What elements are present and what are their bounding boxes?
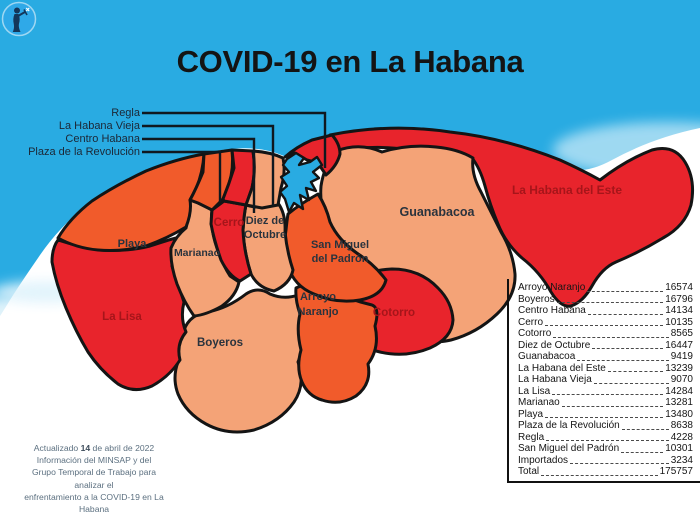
credit-line1-suffix: de abril de 2022 xyxy=(90,443,154,453)
stats-row: Playa13480 xyxy=(518,409,693,421)
stats-value: 13480 xyxy=(665,409,693,421)
callout-label-plaza: Plaza de la Revolución xyxy=(24,146,140,158)
stats-leader xyxy=(577,360,668,361)
stats-leader xyxy=(570,463,669,464)
stats-name: Cerro xyxy=(518,317,543,329)
callout-label-centro-habana: Centro Habana xyxy=(24,133,140,145)
credit-line4: enfrentamiento a la COVID-19 en La Haban… xyxy=(24,492,164,513)
stats-leader xyxy=(587,291,663,292)
stats-name: Arroyo Naranjo xyxy=(518,282,585,294)
stats-row: Importados3234 xyxy=(518,455,693,467)
stats-row: Guanabacoa9419 xyxy=(518,351,693,363)
stats-value: 16574 xyxy=(665,282,693,294)
stats-name: Centro Habana xyxy=(518,305,586,317)
callout-label-habana-vieja: La Habana Vieja xyxy=(24,120,140,132)
stats-name: Cotorro xyxy=(518,328,551,340)
stats-name: Guanabacoa xyxy=(518,351,575,363)
stats-value: 16796 xyxy=(665,294,693,306)
stats-leader xyxy=(588,314,663,315)
stats-row: Cotorro8565 xyxy=(518,328,693,340)
stats-leader xyxy=(545,417,663,418)
stats-row: Plaza de la Revolución8638 xyxy=(518,420,693,432)
stats-leader xyxy=(608,371,663,372)
stats-leader xyxy=(546,440,669,441)
stats-row: La Habana del Este13239 xyxy=(518,363,693,375)
credit-line2: Información del MINSAP y del xyxy=(37,455,151,465)
stats-row: Centro Habana14134 xyxy=(518,305,693,317)
stats-leader xyxy=(621,452,663,453)
stats-value: 13281 xyxy=(665,397,693,409)
stats-value: 10135 xyxy=(665,317,693,329)
region-diez-de-octubre xyxy=(243,203,293,291)
stats-name: Diez de Octubre xyxy=(518,340,590,352)
stats-value: 9419 xyxy=(671,351,693,363)
stats-name: Boyeros xyxy=(518,294,555,306)
stats-name: Plaza de la Revolución xyxy=(518,420,620,432)
stats-value: 3234 xyxy=(671,455,693,467)
stats-name: La Habana Vieja xyxy=(518,374,592,386)
stats-leader xyxy=(553,337,668,338)
stats-name: San Miguel del Padrón xyxy=(518,443,619,455)
stats-leader xyxy=(622,429,669,430)
stats-row: Arroyo Naranjo16574 xyxy=(518,282,693,294)
stats-value: 175757 xyxy=(660,466,693,478)
giraldilla-statue-icon xyxy=(0,0,38,38)
stats-row: La Lisa14284 xyxy=(518,386,693,398)
stats-row: La Habana Vieja9070 xyxy=(518,374,693,386)
region-la-lisa xyxy=(52,238,186,390)
stats-panel: Arroyo Naranjo16574 Boyeros16796 Centro … xyxy=(507,279,700,483)
stats-leader xyxy=(545,325,663,326)
stats-value: 9070 xyxy=(671,374,693,386)
stats-row-total: Total175757 xyxy=(518,466,693,478)
infographic-canvas: Playa Marianao La Lisa Cerro Diez de Oct… xyxy=(0,0,700,513)
stats-leader xyxy=(541,475,658,476)
stats-name: La Habana del Este xyxy=(518,363,606,375)
stats-value: 4228 xyxy=(671,432,693,444)
stats-row: Boyeros16796 xyxy=(518,294,693,306)
stats-value: 16447 xyxy=(665,340,693,352)
credit-line3: Grupo Temporal de Trabajo para analizar … xyxy=(32,467,156,489)
stats-value: 14284 xyxy=(665,386,693,398)
region-arroyo-naranjo xyxy=(296,284,377,402)
stats-name: Marianao xyxy=(518,397,560,409)
stats-name: La Lisa xyxy=(518,386,550,398)
page-title: COVID-19 en La Habana xyxy=(0,44,700,80)
stats-row: Cerro10135 xyxy=(518,317,693,329)
stats-name: Regla xyxy=(518,432,544,444)
stats-leader xyxy=(557,302,664,303)
stats-row: San Miguel del Padrón10301 xyxy=(518,443,693,455)
credit-date: 14 xyxy=(81,443,91,453)
update-note: Actualizado 14 de abril de 2022 Informac… xyxy=(20,442,168,513)
stats-value: 13239 xyxy=(665,363,693,375)
stats-value: 10301 xyxy=(665,443,693,455)
credit-line1-prefix: Actualizado xyxy=(34,443,81,453)
stats-leader xyxy=(562,406,663,407)
stats-name: Total xyxy=(518,466,539,478)
stats-leader xyxy=(594,383,669,384)
stats-name: Importados xyxy=(518,455,568,467)
callout-label-regla: Regla xyxy=(24,107,140,119)
stats-leader xyxy=(552,394,663,395)
stats-value: 8565 xyxy=(671,328,693,340)
stats-value: 8638 xyxy=(671,420,693,432)
stats-name: Playa xyxy=(518,409,543,421)
stats-row: Marianao13281 xyxy=(518,397,693,409)
stats-row: Regla4228 xyxy=(518,432,693,444)
stats-value: 14134 xyxy=(665,305,693,317)
stats-leader xyxy=(592,348,663,349)
stats-row: Diez de Octubre16447 xyxy=(518,340,693,352)
